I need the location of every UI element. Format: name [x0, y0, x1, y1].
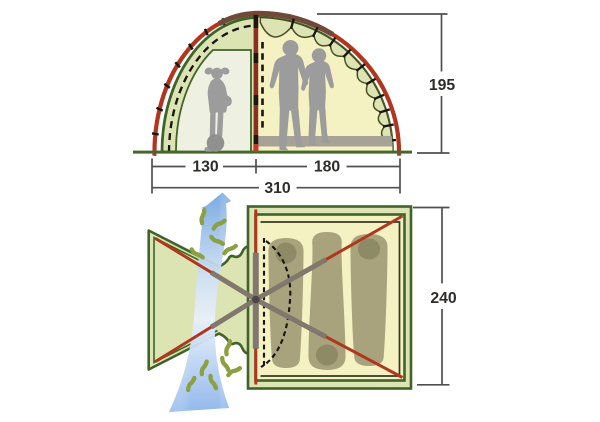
svg-text:310: 310: [264, 180, 291, 197]
svg-text:195: 195: [429, 77, 456, 94]
svg-text:180: 180: [314, 159, 341, 176]
svg-text:240: 240: [430, 290, 457, 307]
svg-text:130: 130: [192, 159, 219, 176]
